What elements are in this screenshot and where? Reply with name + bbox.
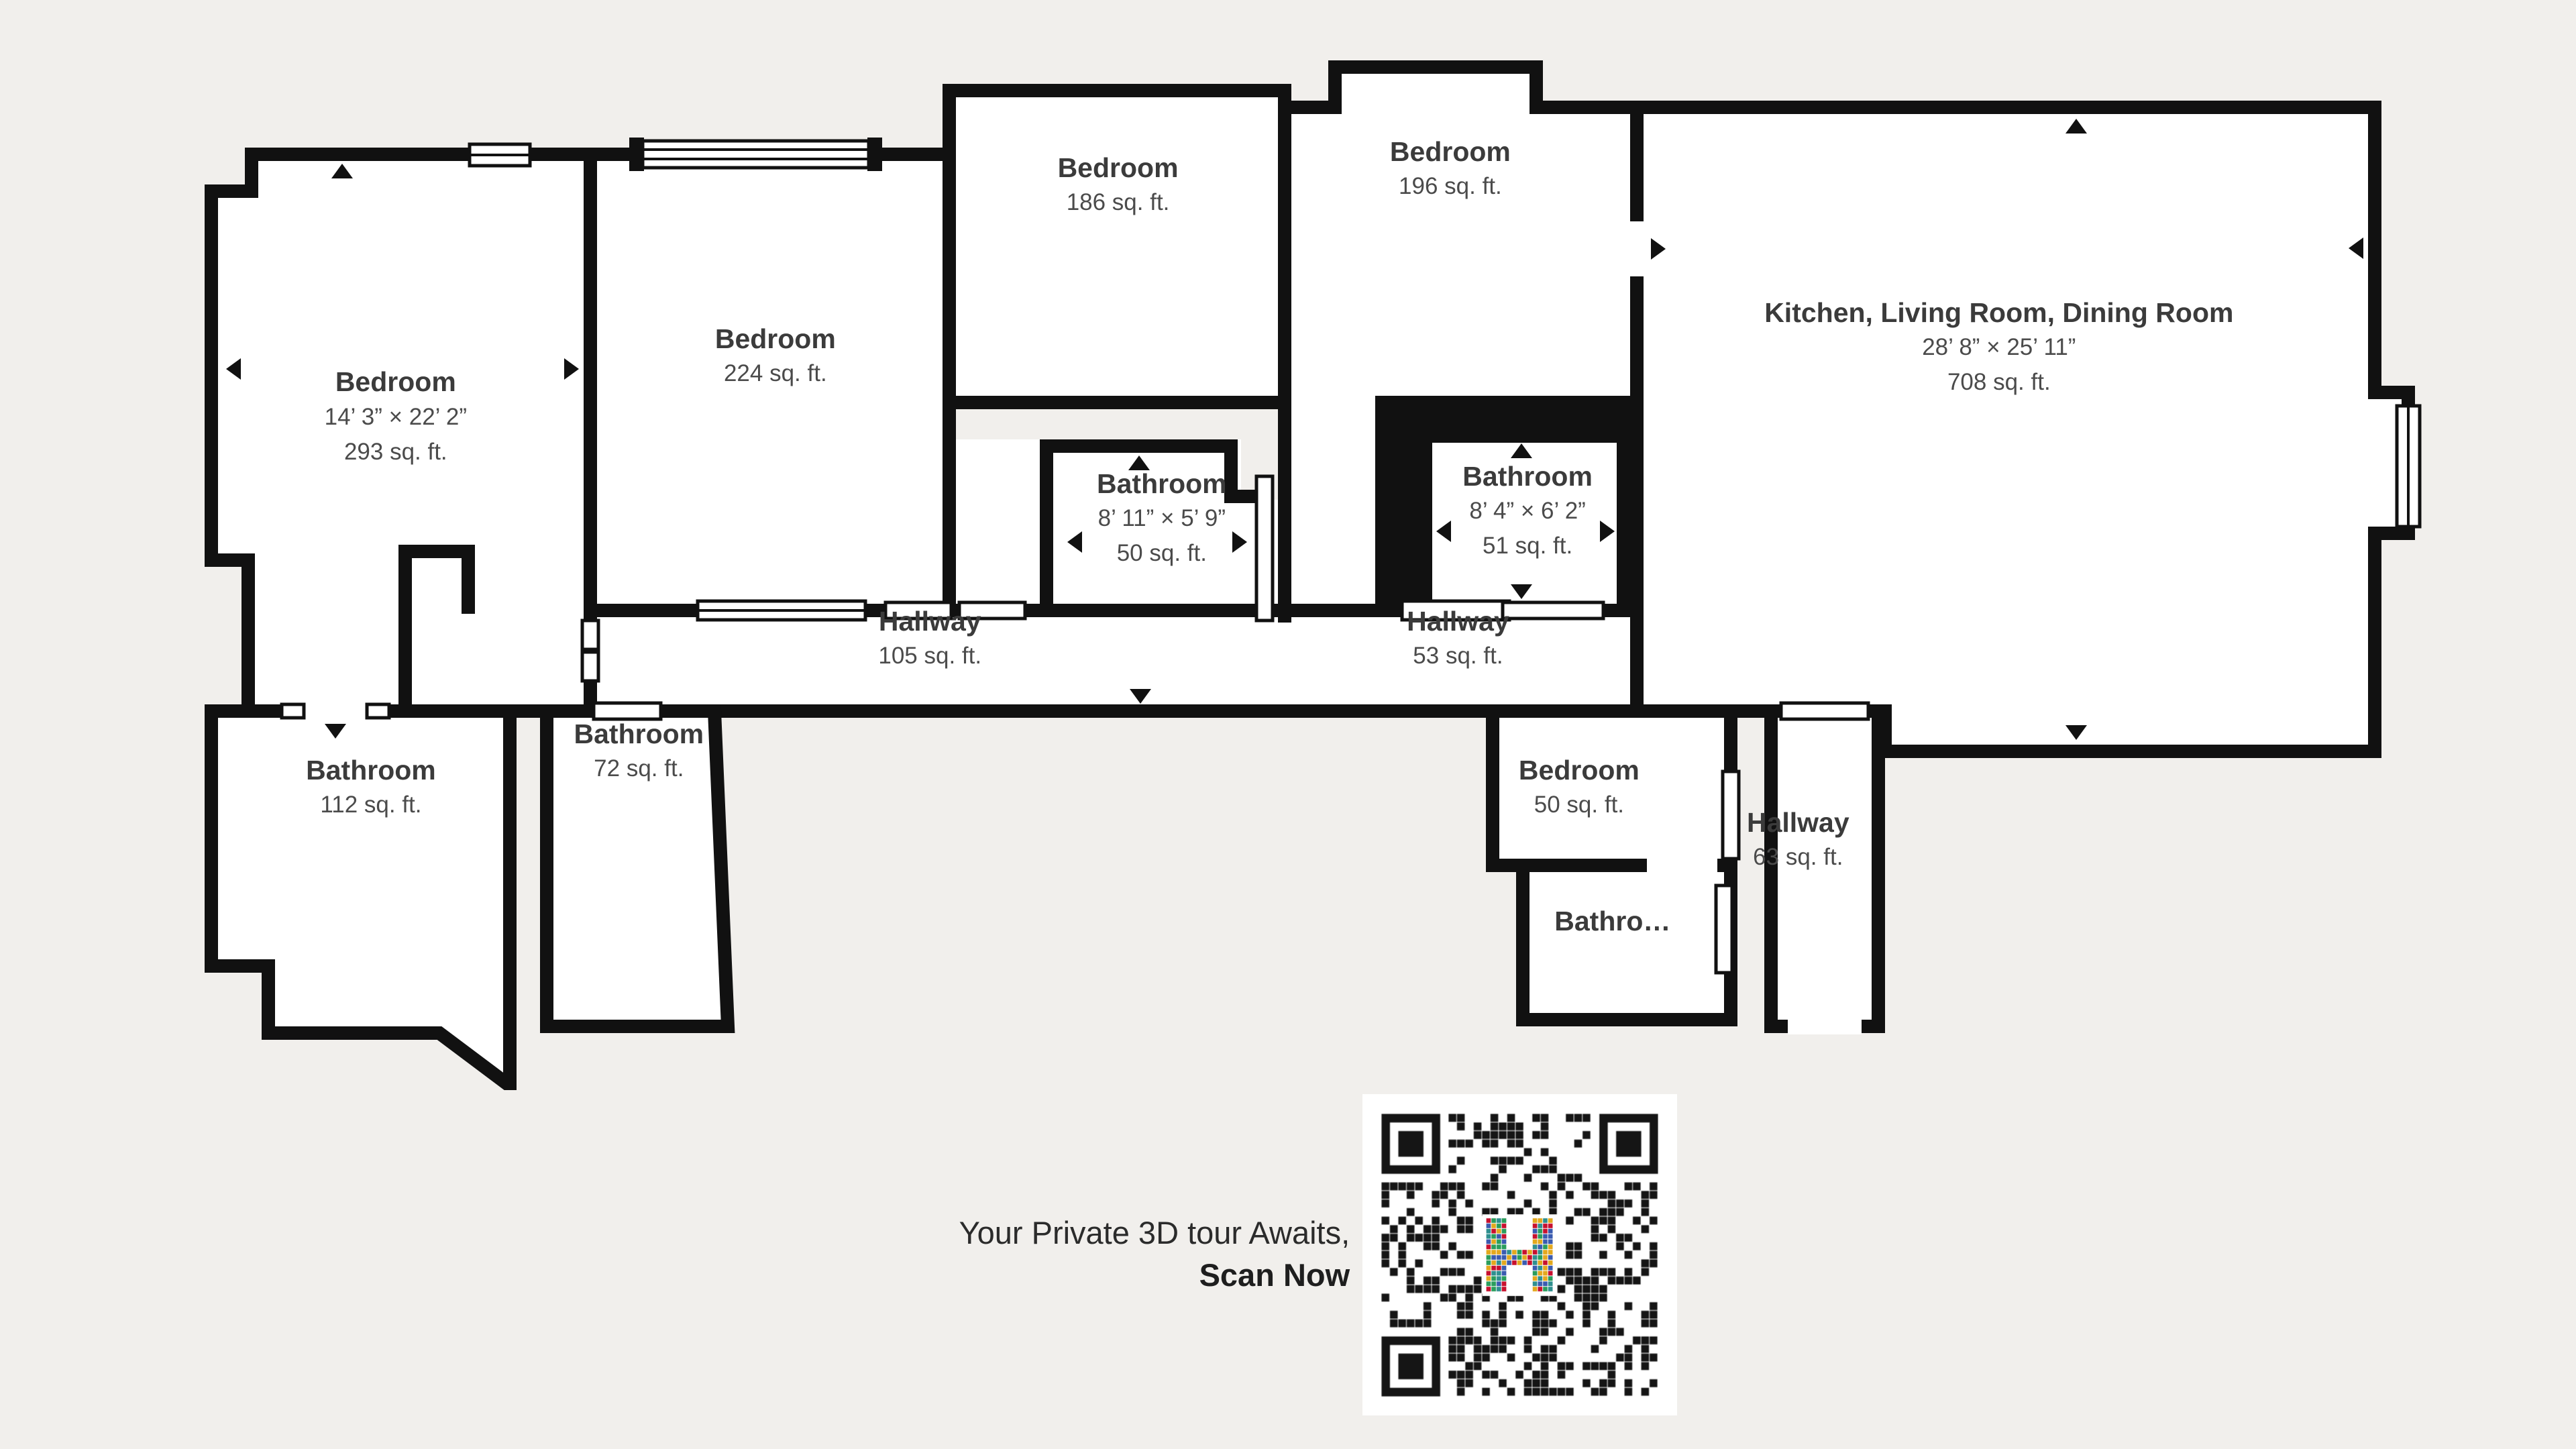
room-label-bedroom-2: Bedroom 224 sq. ft.: [715, 322, 836, 392]
room-area: 51 sq. ft.: [1462, 529, 1593, 564]
room-name: Bedroom: [1390, 135, 1511, 169]
room-name: Hallway: [1747, 806, 1849, 840]
tour-cta-line2: Scan Now: [959, 1254, 1350, 1296]
void-above-bathroom-50: [956, 409, 1278, 439]
room-area: 112 sq. ft.: [306, 788, 436, 823]
room-area: 50 sq. ft.: [1097, 536, 1227, 572]
room-shape-bathroom-truncated: [1523, 865, 1731, 1020]
room-name: Bathro…: [1554, 904, 1670, 938]
room-name: Bathroom: [574, 717, 704, 751]
room-label-bedroom-4: Bedroom 196 sq. ft.: [1390, 135, 1511, 205]
room-label-bedroom-50: Bedroom 50 sq. ft.: [1519, 753, 1640, 823]
room-dims: 28’ 8” × 25’ 11”: [1764, 330, 2233, 366]
room-name: Bedroom: [1519, 753, 1640, 788]
room-area: 53 sq. ft.: [1407, 639, 1509, 674]
room-area: 196 sq. ft.: [1390, 169, 1511, 205]
room-label-bathroom-72: Bathroom 72 sq. ft.: [574, 717, 704, 787]
room-name: Bathroom: [1462, 460, 1593, 494]
tour-cta-line1: Your Private 3D tour Awaits,: [959, 1212, 1350, 1254]
room-label-hallway-53: Hallway 53 sq. ft.: [1407, 604, 1509, 674]
room-dims: 14’ 3” × 22’ 2”: [325, 400, 467, 435]
room-dims: 8’ 11” × 5’ 9”: [1097, 501, 1227, 537]
room-name: Kitchen, Living Room, Dining Room: [1764, 296, 2233, 330]
tour-cta: Your Private 3D tour Awaits, Scan Now: [959, 1212, 1350, 1297]
room-area: 72 sq. ft.: [574, 751, 704, 787]
room-area: 50 sq. ft.: [1519, 788, 1640, 823]
room-label-bathroom-truncated: Bathro…: [1554, 904, 1670, 938]
room-label-bathroom-112: Bathroom 112 sq. ft.: [306, 753, 436, 823]
room-area: 293 sq. ft.: [325, 435, 467, 470]
room-label-kitchen-living-dining: Kitchen, Living Room, Dining Room 28’ 8”…: [1764, 296, 2233, 400]
room-area: 186 sq. ft.: [1058, 185, 1179, 221]
room-name: Bathroom: [306, 753, 436, 788]
wall-block-left-of-bathroom-51b: [1375, 396, 1426, 617]
room-name: Hallway: [1407, 604, 1509, 639]
qr-canvas: [1381, 1114, 1658, 1397]
room-label-bathroom-51: Bathroom 8’ 4” × 6’ 2” 51 sq. ft.: [1462, 460, 1593, 564]
room-area: 63 sq. ft.: [1747, 840, 1849, 875]
room-label-bedroom-1: Bedroom 14’ 3” × 22’ 2” 293 sq. ft.: [325, 365, 467, 470]
room-shape-kitchen-living-dining: [1637, 107, 2408, 751]
room-label-hallway-105: Hallway 105 sq. ft.: [878, 604, 981, 674]
room-name: Bedroom: [1058, 151, 1179, 185]
room-area: 105 sq. ft.: [878, 639, 981, 674]
room-area: 224 sq. ft.: [715, 356, 836, 392]
room-label-bedroom-3: Bedroom 186 sq. ft.: [1058, 151, 1179, 221]
room-name: Bathroom: [1097, 467, 1227, 501]
room-name: Hallway: [878, 604, 981, 639]
room-name: Bedroom: [325, 365, 467, 399]
room-label-bathroom-50: Bathroom 8’ 11” × 5’ 9” 50 sq. ft.: [1097, 467, 1227, 572]
room-label-hallway-63: Hallway 63 sq. ft.: [1747, 806, 1849, 875]
qr-code: [1362, 1094, 1676, 1416]
room-dims: 8’ 4” × 6’ 2”: [1462, 494, 1593, 529]
floor-plan: Bedroom 14’ 3” × 22’ 2” 293 sq. ft. Bedr…: [0, 0, 2576, 1449]
room-name: Bedroom: [715, 322, 836, 356]
room-area: 708 sq. ft.: [1764, 365, 2233, 400]
